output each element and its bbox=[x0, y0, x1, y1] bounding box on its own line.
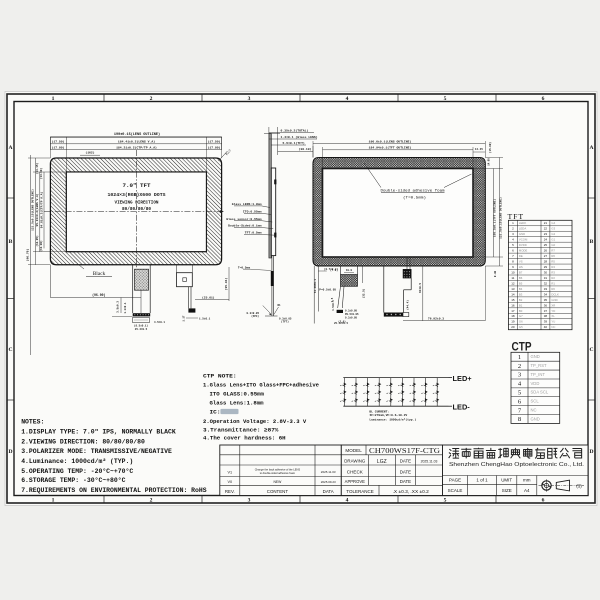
svg-text:5.5±0.1(TFT): 5.5±0.1(TFT) bbox=[283, 141, 305, 145]
svg-text:33: 33 bbox=[544, 287, 548, 291]
svg-text:8.48: 8.48 bbox=[494, 270, 497, 277]
svg-text:(96.00): (96.00) bbox=[92, 293, 105, 297]
svg-text:B2: B2 bbox=[519, 298, 523, 302]
svg-text:(13.08): (13.08) bbox=[39, 167, 43, 179]
svg-text:LEDK: LEDK bbox=[519, 221, 526, 225]
svg-text:6: 6 bbox=[542, 498, 545, 504]
svg-text:1.1±0.1: 1.1±0.1 bbox=[124, 302, 127, 313]
svg-text:(95.94): (95.94) bbox=[224, 278, 228, 291]
svg-text:26: 26 bbox=[544, 249, 548, 253]
svg-text:Glass sensor:0.55mm: Glass sensor:0.55mm bbox=[226, 217, 261, 221]
svg-text:2: 2 bbox=[150, 498, 153, 504]
svg-text:7.REQUIREMENTS ON ENVIRONMENTA: 7.REQUIREMENTS ON ENVIRONMENTAL PROTECTI… bbox=[21, 487, 207, 494]
svg-text:DCLK: DCLK bbox=[551, 292, 559, 296]
svg-text:34: 34 bbox=[544, 292, 548, 296]
svg-text:38: 38 bbox=[544, 314, 548, 318]
svg-text:14.05: 14.05 bbox=[488, 158, 491, 166]
svg-text:(12.95): (12.95) bbox=[35, 235, 39, 247]
svg-text:B4: B4 bbox=[519, 287, 523, 291]
svg-text:(96.76): (96.76) bbox=[25, 249, 29, 262]
svg-text:R4: R4 bbox=[551, 265, 555, 269]
svg-text:25.4±0.5: 25.4±0.5 bbox=[135, 328, 148, 331]
svg-text:Glass LENS:1.8mm: Glass LENS:1.8mm bbox=[232, 202, 262, 206]
svg-text:CH700WS17F-CTG: CH700WS17F-CTG bbox=[369, 446, 441, 455]
svg-text:CONTENT: CONTENT bbox=[267, 489, 289, 494]
svg-text:G6: G6 bbox=[519, 320, 523, 324]
svg-text:DATA: DATA bbox=[323, 489, 334, 494]
svg-text:35: 35 bbox=[544, 298, 548, 302]
svg-text:(17.00): (17.00) bbox=[52, 146, 65, 150]
svg-text:GND: GND bbox=[519, 232, 525, 236]
svg-text:SIZE: SIZE bbox=[502, 488, 512, 493]
svg-text:76.92±0.3: 76.92±0.3 bbox=[428, 318, 444, 321]
svg-text:19: 19 bbox=[511, 320, 515, 324]
svg-text:Luminance: 1000cd/m²(typ.): Luminance: 1000cd/m²(typ.) bbox=[369, 417, 416, 421]
svg-text:(17.50): (17.50) bbox=[52, 140, 65, 144]
svg-text:23: 23 bbox=[544, 232, 548, 236]
svg-text:CTP: CTP bbox=[512, 342, 532, 354]
svg-text:2.Operation Voltage: 2.8V-3.3: 2.Operation Voltage: 2.8V-3.3 V bbox=[203, 418, 307, 425]
svg-text:BL CURRENT:: BL CURRENT: bbox=[369, 410, 389, 413]
svg-text:4.5±0.1: 4.5±0.1 bbox=[154, 321, 165, 324]
svg-text:Double-Sided:0.1mm: Double-Sided:0.1mm bbox=[228, 224, 262, 228]
svg-text:R3: R3 bbox=[551, 270, 555, 274]
svg-text:T=0.5mm: T=0.5mm bbox=[238, 266, 250, 269]
svg-text:4: 4 bbox=[346, 498, 349, 504]
svg-text:C: C bbox=[8, 347, 12, 353]
svg-text:36: 36 bbox=[544, 303, 548, 307]
svg-text:PAGE: PAGE bbox=[449, 477, 461, 482]
svg-text:XL: XL bbox=[551, 314, 555, 318]
svg-text:(17.50): (17.50) bbox=[208, 140, 221, 144]
svg-text:3: 3 bbox=[248, 96, 251, 102]
svg-text:Black: Black bbox=[93, 271, 106, 277]
svg-text:61±0.5: 61±0.5 bbox=[419, 283, 422, 293]
svg-text:R1: R1 bbox=[551, 281, 555, 285]
svg-text:NC: NC bbox=[531, 407, 537, 412]
svg-text:R6: R6 bbox=[551, 254, 555, 258]
svg-text:R7: R7 bbox=[551, 249, 555, 253]
svg-text:184.21±0.2(CTP/TP A.A): 184.21±0.2(CTP/TP A.A) bbox=[116, 146, 157, 150]
svg-text:37: 37 bbox=[544, 309, 548, 313]
svg-text:TP_RST: TP_RST bbox=[531, 363, 547, 368]
svg-text:DATE: DATE bbox=[400, 479, 411, 484]
svg-text:(25.61): (25.61) bbox=[202, 295, 215, 299]
svg-text:(15.08): (15.08) bbox=[488, 142, 492, 153]
svg-text:1.Glass Lens+ITO Glass+FPC+adh: 1.Glass Lens+ITO Glass+FPC+adhesive bbox=[203, 382, 320, 389]
svg-text:(FPC): (FPC) bbox=[251, 314, 259, 318]
svg-text:GND: GND bbox=[531, 354, 540, 359]
svg-text:(44.4): (44.4) bbox=[406, 300, 410, 310]
svg-text:80/80/80/80: 80/80/80/80 bbox=[122, 206, 151, 212]
svg-text:21: 21 bbox=[544, 221, 548, 225]
svg-text:IF=270mA,VF=9.6~10.2V: IF=270mA,VF=9.6~10.2V bbox=[369, 414, 407, 417]
svg-text:2: 2 bbox=[518, 363, 521, 370]
svg-text:A: A bbox=[589, 145, 593, 151]
svg-text:16: 16 bbox=[511, 303, 515, 307]
svg-text:1024×3(RGB)X600 DOTS: 1024×3(RGB)X600 DOTS bbox=[108, 192, 166, 198]
svg-text:(2.0): (2.0) bbox=[338, 321, 346, 324]
svg-text:22: 22 bbox=[544, 227, 548, 231]
svg-text:190±0.15(LENS OUTLINE): 190±0.15(LENS OUTLINE) bbox=[114, 132, 160, 137]
svg-text:184.41±0.2(LENS V.A): 184.41±0.2(LENS V.A) bbox=[118, 140, 155, 144]
svg-text:1: 1 bbox=[52, 498, 55, 504]
svg-text:TOLERANCE: TOLERANCE bbox=[346, 489, 373, 494]
svg-text:GND: GND bbox=[551, 298, 557, 302]
svg-text:TP_INT: TP_INT bbox=[531, 372, 546, 377]
svg-text:Shenzhen ChengHao Optoelectron: Shenzhen ChengHao Optoelectronic Co., Lt… bbox=[449, 462, 585, 468]
svg-text:A: A bbox=[8, 145, 12, 151]
svg-text:1: 1 bbox=[518, 354, 521, 361]
svg-text:3.Transmittance: ≥87%: 3.Transmittance: ≥87% bbox=[203, 426, 279, 433]
svg-text:32: 32 bbox=[544, 281, 548, 285]
svg-text:D: D bbox=[8, 449, 12, 455]
svg-text:31: 31 bbox=[544, 276, 548, 280]
svg-text:1: 1 bbox=[52, 96, 55, 102]
svg-text:G3: G3 bbox=[551, 227, 555, 231]
svg-text:DATE: DATE bbox=[400, 469, 411, 474]
svg-text:TFT:0.5mm: TFT:0.5mm bbox=[245, 231, 262, 235]
svg-text:20: 20 bbox=[511, 325, 515, 329]
svg-text:NOTES:: NOTES: bbox=[21, 419, 44, 426]
svg-text:5: 5 bbox=[444, 96, 447, 102]
svg-text:12: 12 bbox=[511, 281, 515, 285]
svg-text:10: 10 bbox=[511, 270, 515, 274]
svg-text:184.94±0.1(TFT OUTLINE): 184.94±0.1(TFT OUTLINE) bbox=[369, 146, 412, 150]
svg-text:VIEWING DIRECTION: VIEWING DIRECTION bbox=[115, 199, 159, 205]
svg-text:1.17: 1.17 bbox=[183, 315, 186, 322]
svg-text:UMIT: UMIT bbox=[501, 477, 512, 482]
svg-text:27: 27 bbox=[544, 254, 548, 258]
svg-text:28: 28 bbox=[544, 260, 548, 264]
svg-text:XR: XR bbox=[551, 303, 555, 307]
svg-text:R5: R5 bbox=[551, 260, 555, 264]
svg-text:G4: G4 bbox=[551, 221, 555, 225]
svg-text:CTP NOTE:: CTP NOTE: bbox=[203, 373, 237, 380]
svg-text:Change the back adhesive of th: Change the back adhesive of the LENS bbox=[255, 467, 301, 471]
svg-text:DATE: DATE bbox=[400, 458, 411, 463]
svg-text:YD: YD bbox=[551, 309, 555, 313]
svg-text:C: C bbox=[589, 347, 593, 353]
svg-text:1.4±0.1 (Glass LENS): 1.4±0.1 (Glass LENS) bbox=[281, 135, 318, 139]
svg-text:3.5±0.3: 3.5±0.3 bbox=[117, 301, 120, 313]
svg-text:(13.15): (13.15) bbox=[35, 162, 39, 174]
svg-text:24: 24 bbox=[544, 238, 548, 242]
svg-text:YU: YU bbox=[551, 320, 555, 324]
svg-text:mm: mm bbox=[523, 477, 531, 482]
svg-text:(38.10): (38.10) bbox=[299, 147, 312, 151]
svg-text:.X ±0.3, .XX ±0.2: .X ±0.3, .XX ±0.2 bbox=[393, 489, 430, 495]
svg-text:G2: G2 bbox=[551, 232, 555, 236]
svg-text:TFT: TFT bbox=[508, 212, 525, 221]
svg-text:B6: B6 bbox=[519, 276, 523, 280]
svg-text:NC: NC bbox=[551, 325, 555, 329]
svg-text:(T=0.5mm): (T=0.5mm) bbox=[403, 195, 426, 200]
svg-text:B1: B1 bbox=[519, 303, 523, 307]
svg-text:1 of 1: 1 of 1 bbox=[476, 477, 488, 482]
svg-text:REV.: REV. bbox=[225, 489, 235, 494]
svg-text:HS: HS bbox=[519, 265, 523, 269]
svg-text:6: 6 bbox=[542, 96, 545, 102]
svg-text:G1: G1 bbox=[551, 238, 555, 242]
svg-text:LED+: LED+ bbox=[453, 374, 473, 383]
svg-text:6.35±0.2(TOTAL): 6.35±0.2(TOTAL) bbox=[281, 129, 309, 133]
svg-text:2025.11.03: 2025.11.03 bbox=[421, 459, 438, 463]
svg-text:0.3±0.05: 0.3±0.05 bbox=[345, 317, 358, 320]
svg-text:MODEL: MODEL bbox=[345, 448, 362, 453]
svg-text:G7: G7 bbox=[519, 314, 523, 318]
svg-text:VS: VS bbox=[519, 260, 523, 264]
svg-text:5.OPERATING TEMP: -20°C~+70°C: 5.OPERATING TEMP: -20°C~+70°C bbox=[21, 467, 133, 475]
svg-text:B: B bbox=[9, 239, 13, 245]
svg-text:V1: V1 bbox=[227, 470, 232, 474]
svg-text:SCL: SCL bbox=[531, 399, 540, 404]
svg-text:LEDA: LEDA bbox=[519, 227, 526, 231]
svg-text:14: 14 bbox=[511, 292, 515, 296]
svg-text:APPROVE: APPROVE bbox=[345, 479, 365, 484]
svg-text:R0: R0 bbox=[551, 287, 555, 291]
svg-text:7.0" TFT: 7.0" TFT bbox=[123, 182, 152, 189]
svg-text:NEW: NEW bbox=[273, 480, 282, 484]
svg-text:18: 18 bbox=[511, 314, 515, 318]
svg-text:VDD: VDD bbox=[531, 381, 540, 386]
svg-text:(162): (162) bbox=[85, 150, 94, 154]
svg-text:190.6±0.1(LENS OUTLINE): 190.6±0.1(LENS OUTLINE) bbox=[369, 139, 412, 143]
svg-text:1.5±0.1: 1.5±0.1 bbox=[199, 317, 211, 320]
svg-text:2025.11.03: 2025.11.03 bbox=[321, 470, 336, 474]
svg-text:D: D bbox=[589, 449, 593, 455]
svg-text:13: 13 bbox=[511, 287, 515, 291]
svg-text:3: 3 bbox=[248, 498, 251, 504]
svg-text:V0: V0 bbox=[227, 480, 232, 484]
svg-text:IC:: IC: bbox=[210, 409, 221, 416]
svg-text:95.91±0.2(LENS V.A): 95.91±0.2(LENS V.A) bbox=[35, 193, 39, 226]
svg-text:B5: B5 bbox=[519, 281, 523, 285]
svg-text:(7.0): (7.0) bbox=[330, 268, 338, 272]
svg-text:105.5±0.1(TFT OUTLINE): 105.5±0.1(TFT OUTLINE) bbox=[492, 199, 496, 237]
svg-text:121.5±0.15(LENS OUTLINE): 121.5±0.15(LENS OUTLINE) bbox=[31, 189, 35, 231]
svg-text:17: 17 bbox=[511, 309, 515, 313]
svg-text:B7: B7 bbox=[519, 270, 523, 274]
svg-text:40: 40 bbox=[544, 325, 548, 329]
svg-text:(8.5±0.1): (8.5±0.1) bbox=[134, 323, 148, 327]
svg-text:CHECK: CHECK bbox=[347, 469, 364, 474]
svg-text:4.The cover hardness: 6H: 4.The cover hardness: 6H bbox=[203, 435, 286, 442]
svg-text:6.STORAGE TEMP: -30°C~+80°C: 6.STORAGE TEMP: -30°C~+80°C bbox=[21, 476, 125, 484]
svg-text:29: 29 bbox=[544, 265, 548, 269]
svg-text:G5: G5 bbox=[519, 325, 523, 329]
svg-text:(3): (3) bbox=[576, 483, 582, 488]
svg-text:B3: B3 bbox=[519, 292, 523, 296]
svg-text:1.DISPLAY TYPE: 7.0" IPS, NOR: 1.DISPLAY TYPE: 7.0" IPS, NORMALLY BLACK bbox=[21, 429, 176, 436]
svg-text:11: 11 bbox=[511, 276, 514, 280]
svg-text:4: 4 bbox=[346, 96, 349, 102]
svg-text:A4: A4 bbox=[524, 488, 530, 493]
svg-text:121.5±0.15(LENS OUTLINE): 121.5±0.15(LENS OUTLINE) bbox=[499, 197, 503, 239]
svg-text:G0: G0 bbox=[551, 243, 555, 247]
svg-text:14.25: 14.25 bbox=[475, 148, 483, 151]
svg-text:LED-: LED- bbox=[453, 403, 471, 412]
svg-text:ITO:0.55mm: ITO:0.55mm bbox=[243, 209, 262, 213]
svg-text:MODE: MODE bbox=[519, 249, 528, 253]
svg-text:VCOM: VCOM bbox=[519, 238, 528, 242]
svg-text:2: 2 bbox=[150, 96, 153, 102]
svg-text:19.0: 19.0 bbox=[346, 269, 353, 272]
svg-text:(32.5): (32.5) bbox=[362, 288, 366, 298]
svg-text:B0: B0 bbox=[519, 309, 523, 313]
svg-text:(13.08): (13.08) bbox=[39, 240, 43, 252]
svg-text:DRAWING: DRAWING bbox=[344, 458, 366, 463]
svg-text:5: 5 bbox=[444, 498, 447, 504]
svg-text:GND: GND bbox=[531, 416, 540, 421]
svg-text:SCALE: SCALE bbox=[448, 488, 463, 493]
svg-text:25: 25 bbox=[544, 243, 548, 247]
svg-text:LGZ: LGZ bbox=[377, 459, 387, 465]
svg-text:(TFT): (TFT) bbox=[281, 319, 289, 323]
svg-text:ITO GLASS:0.55mm: ITO GLASS:0.55mm bbox=[210, 391, 265, 398]
svg-text:(17.00): (17.00) bbox=[208, 146, 221, 150]
svg-text:Glass Lens:1.8mm: Glass Lens:1.8mm bbox=[210, 400, 265, 407]
svg-text:to double-sided adhesive foam: to double-sided adhesive foam bbox=[260, 471, 295, 475]
svg-text:R1: R1 bbox=[278, 304, 282, 307]
svg-text:1.5±0.1: 1.5±0.1 bbox=[332, 300, 335, 311]
svg-text:3.POLARIZER MODE: TRANSMISSIVE: 3.POLARIZER MODE: TRANSMISSIVE/NEGATIVE bbox=[21, 448, 172, 455]
svg-text:13.49±0.3: 13.49±0.3 bbox=[314, 279, 317, 293]
svg-text:30: 30 bbox=[544, 270, 548, 274]
svg-text:94.81±0.2(CTP/TP A.A): 94.81±0.2(CTP/TP A.A) bbox=[40, 192, 44, 229]
svg-text:15: 15 bbox=[511, 298, 515, 302]
svg-text:B: B bbox=[590, 239, 594, 245]
svg-text:SDA SCL: SDA SCL bbox=[531, 390, 549, 395]
svg-text:2.VIEWING DIRECTION: 80/80/80/: 2.VIEWING DIRECTION: 80/80/80/80 bbox=[21, 438, 145, 445]
svg-text:P=0.5±0.05: P=0.5±0.05 bbox=[319, 288, 336, 291]
svg-text:DE: DE bbox=[519, 254, 523, 258]
svg-text:2025.09.23: 2025.09.23 bbox=[321, 480, 336, 484]
svg-text:4.Luminance: 1000cd/m² (TYP.): 4.Luminance: 1000cd/m² (TYP.) bbox=[21, 458, 133, 465]
svg-text:39: 39 bbox=[544, 320, 548, 324]
svg-text:DVDD: DVDD bbox=[519, 243, 527, 247]
svg-text:R2: R2 bbox=[551, 276, 555, 280]
